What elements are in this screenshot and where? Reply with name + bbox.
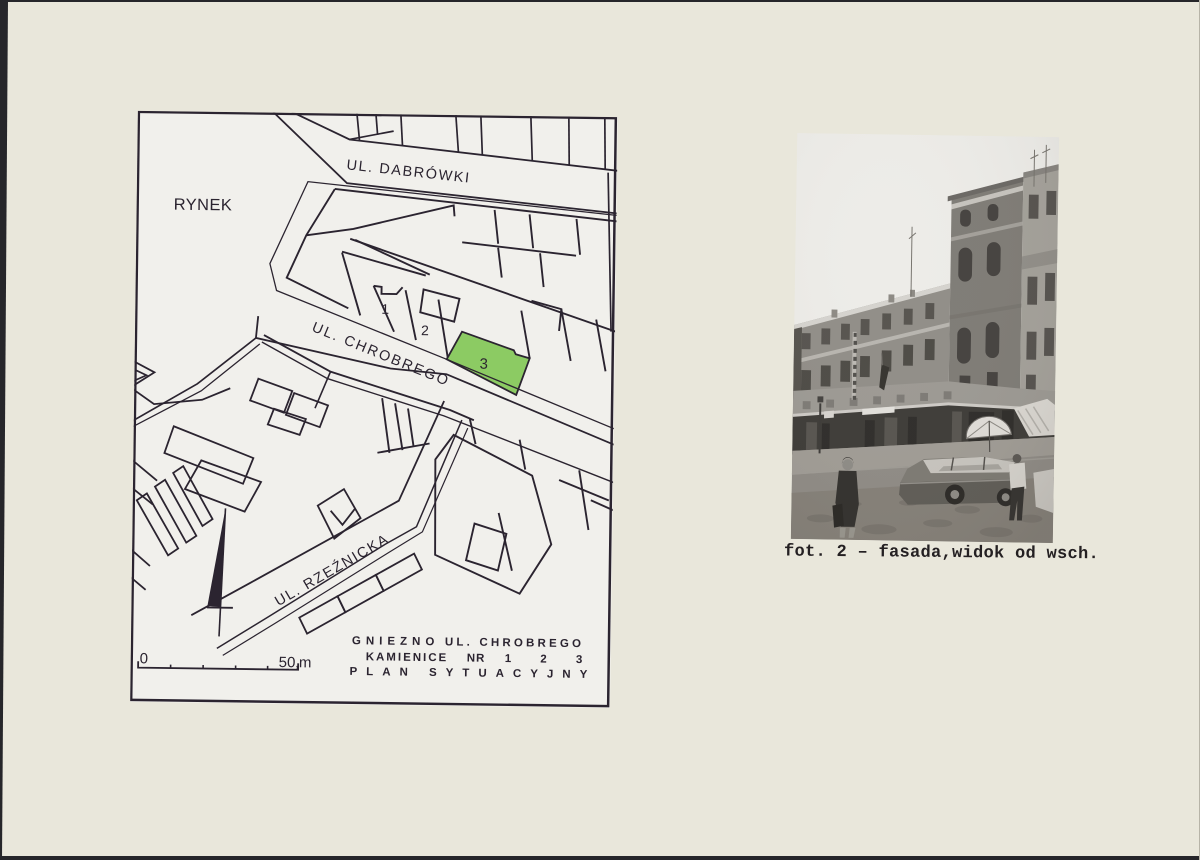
svg-text:NR: NR (467, 653, 486, 665)
svg-text:GNIEZNO: GNIEZNO (352, 635, 440, 648)
svg-text:1 2 3: 1 2 3 (505, 653, 596, 666)
svg-text:KAMIENICE: KAMIENICE (366, 651, 449, 664)
svg-text:1: 1 (381, 301, 389, 317)
svg-text:2: 2 (421, 322, 429, 338)
svg-text:UL. CHROBREGO: UL. CHROBREGO (445, 636, 584, 650)
svg-text:3: 3 (479, 356, 488, 373)
svg-text:50,m: 50,m (279, 654, 312, 671)
svg-text:RYNEK: RYNEK (174, 196, 233, 215)
svg-text:0: 0 (140, 650, 149, 667)
